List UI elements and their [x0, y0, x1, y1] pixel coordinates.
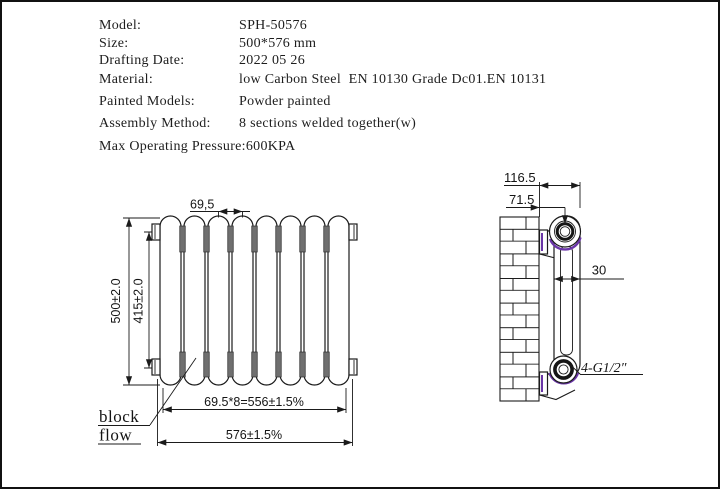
dimension-width-sections: 69.5*8=556±1.5% — [163, 388, 346, 413]
pipe-connection-bottom — [550, 356, 577, 383]
dim-pipe-center-text: 71.5 — [509, 192, 534, 207]
front-view: 500±2.0 415±2.0 69,5 69.5*8=556±1.5% — [98, 198, 357, 447]
dim-column-width-text: 30 — [592, 263, 606, 278]
side-view: 116.5 71.5 30 4-G1/2″ — [500, 170, 643, 401]
thread-callout: 4-G1/2″ — [570, 361, 643, 376]
block-flow-line1: block — [99, 407, 139, 426]
technical-drawing: 500±2.0 415±2.0 69,5 69.5*8=556±1.5% — [2, 2, 718, 487]
dimension-section-width: 69,5 — [190, 198, 250, 218]
block-flow-line2: flow — [99, 426, 132, 445]
dim-width-sections-text: 69.5*8=556±1.5% — [204, 395, 304, 409]
drawing-sheet: Model:SPH-50576 Size:500*576 mm Drafting… — [0, 0, 720, 489]
dim-section-width-text: 69,5 — [190, 198, 214, 212]
thread-label-text: 4-G1/2″ — [581, 361, 627, 376]
dimension-height-inner: 415±2.0 — [132, 232, 153, 368]
dim-height-overall-text: 500±2.0 — [109, 278, 123, 323]
dimension-width-overall: 576±1.5% — [158, 379, 353, 446]
dim-width-overall-text: 576±1.5% — [226, 428, 282, 442]
dim-height-inner-text: 415±2.0 — [132, 278, 146, 323]
brick-wall — [500, 217, 539, 401]
dim-depth-overall-text: 116.5 — [504, 170, 536, 185]
